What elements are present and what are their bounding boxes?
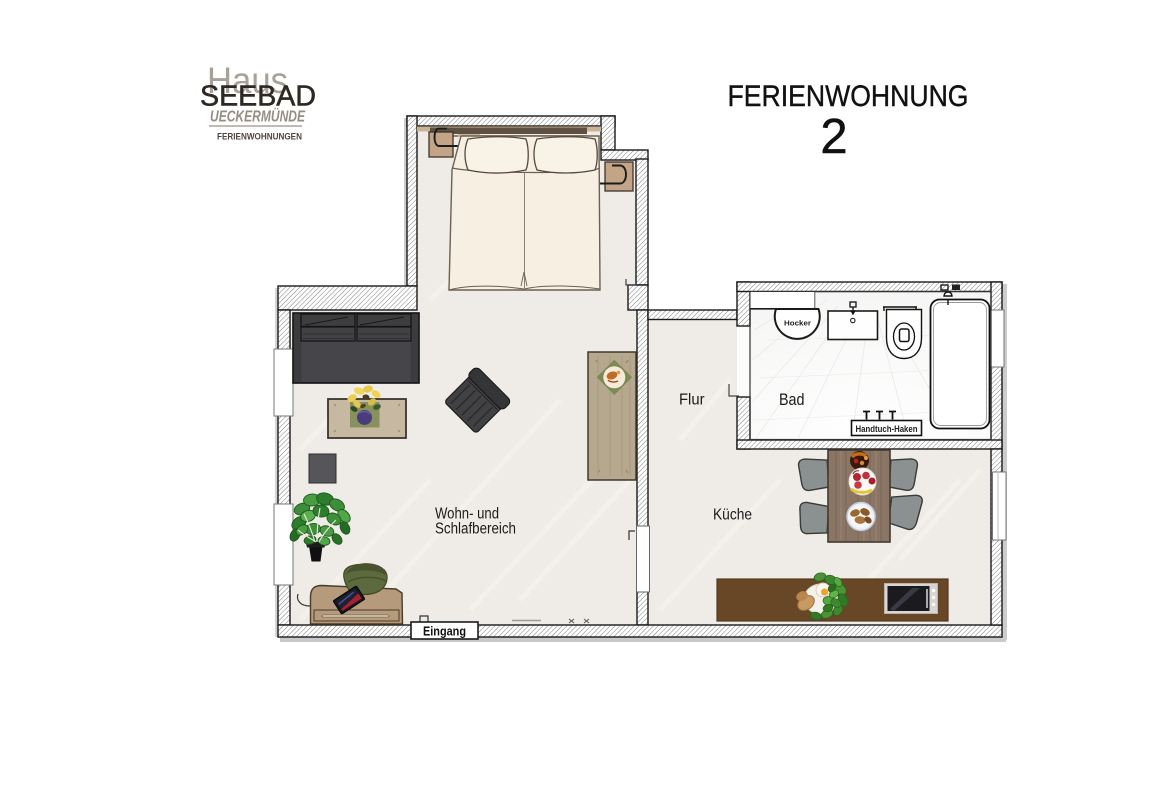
svg-text:Handtuch-Haken: Handtuch-Haken xyxy=(856,424,918,434)
svg-text:2: 2 xyxy=(820,110,847,164)
svg-text:Flur: Flur xyxy=(679,392,705,409)
svg-text:Bad: Bad xyxy=(779,390,805,409)
svg-text:FERIENWOHNUNGEN: FERIENWOHNUNGEN xyxy=(217,132,302,143)
svg-text:Küche: Küche xyxy=(713,507,752,524)
svg-text:UECKERMÜNDE: UECKERMÜNDE xyxy=(210,109,306,126)
svg-text:Schlafbereich: Schlafbereich xyxy=(435,521,516,538)
svg-text:Eingang: Eingang xyxy=(423,625,466,639)
svg-text:Hocker: Hocker xyxy=(784,321,811,328)
svg-text:FERIENWOHNUNG: FERIENWOHNUNG xyxy=(728,80,969,113)
